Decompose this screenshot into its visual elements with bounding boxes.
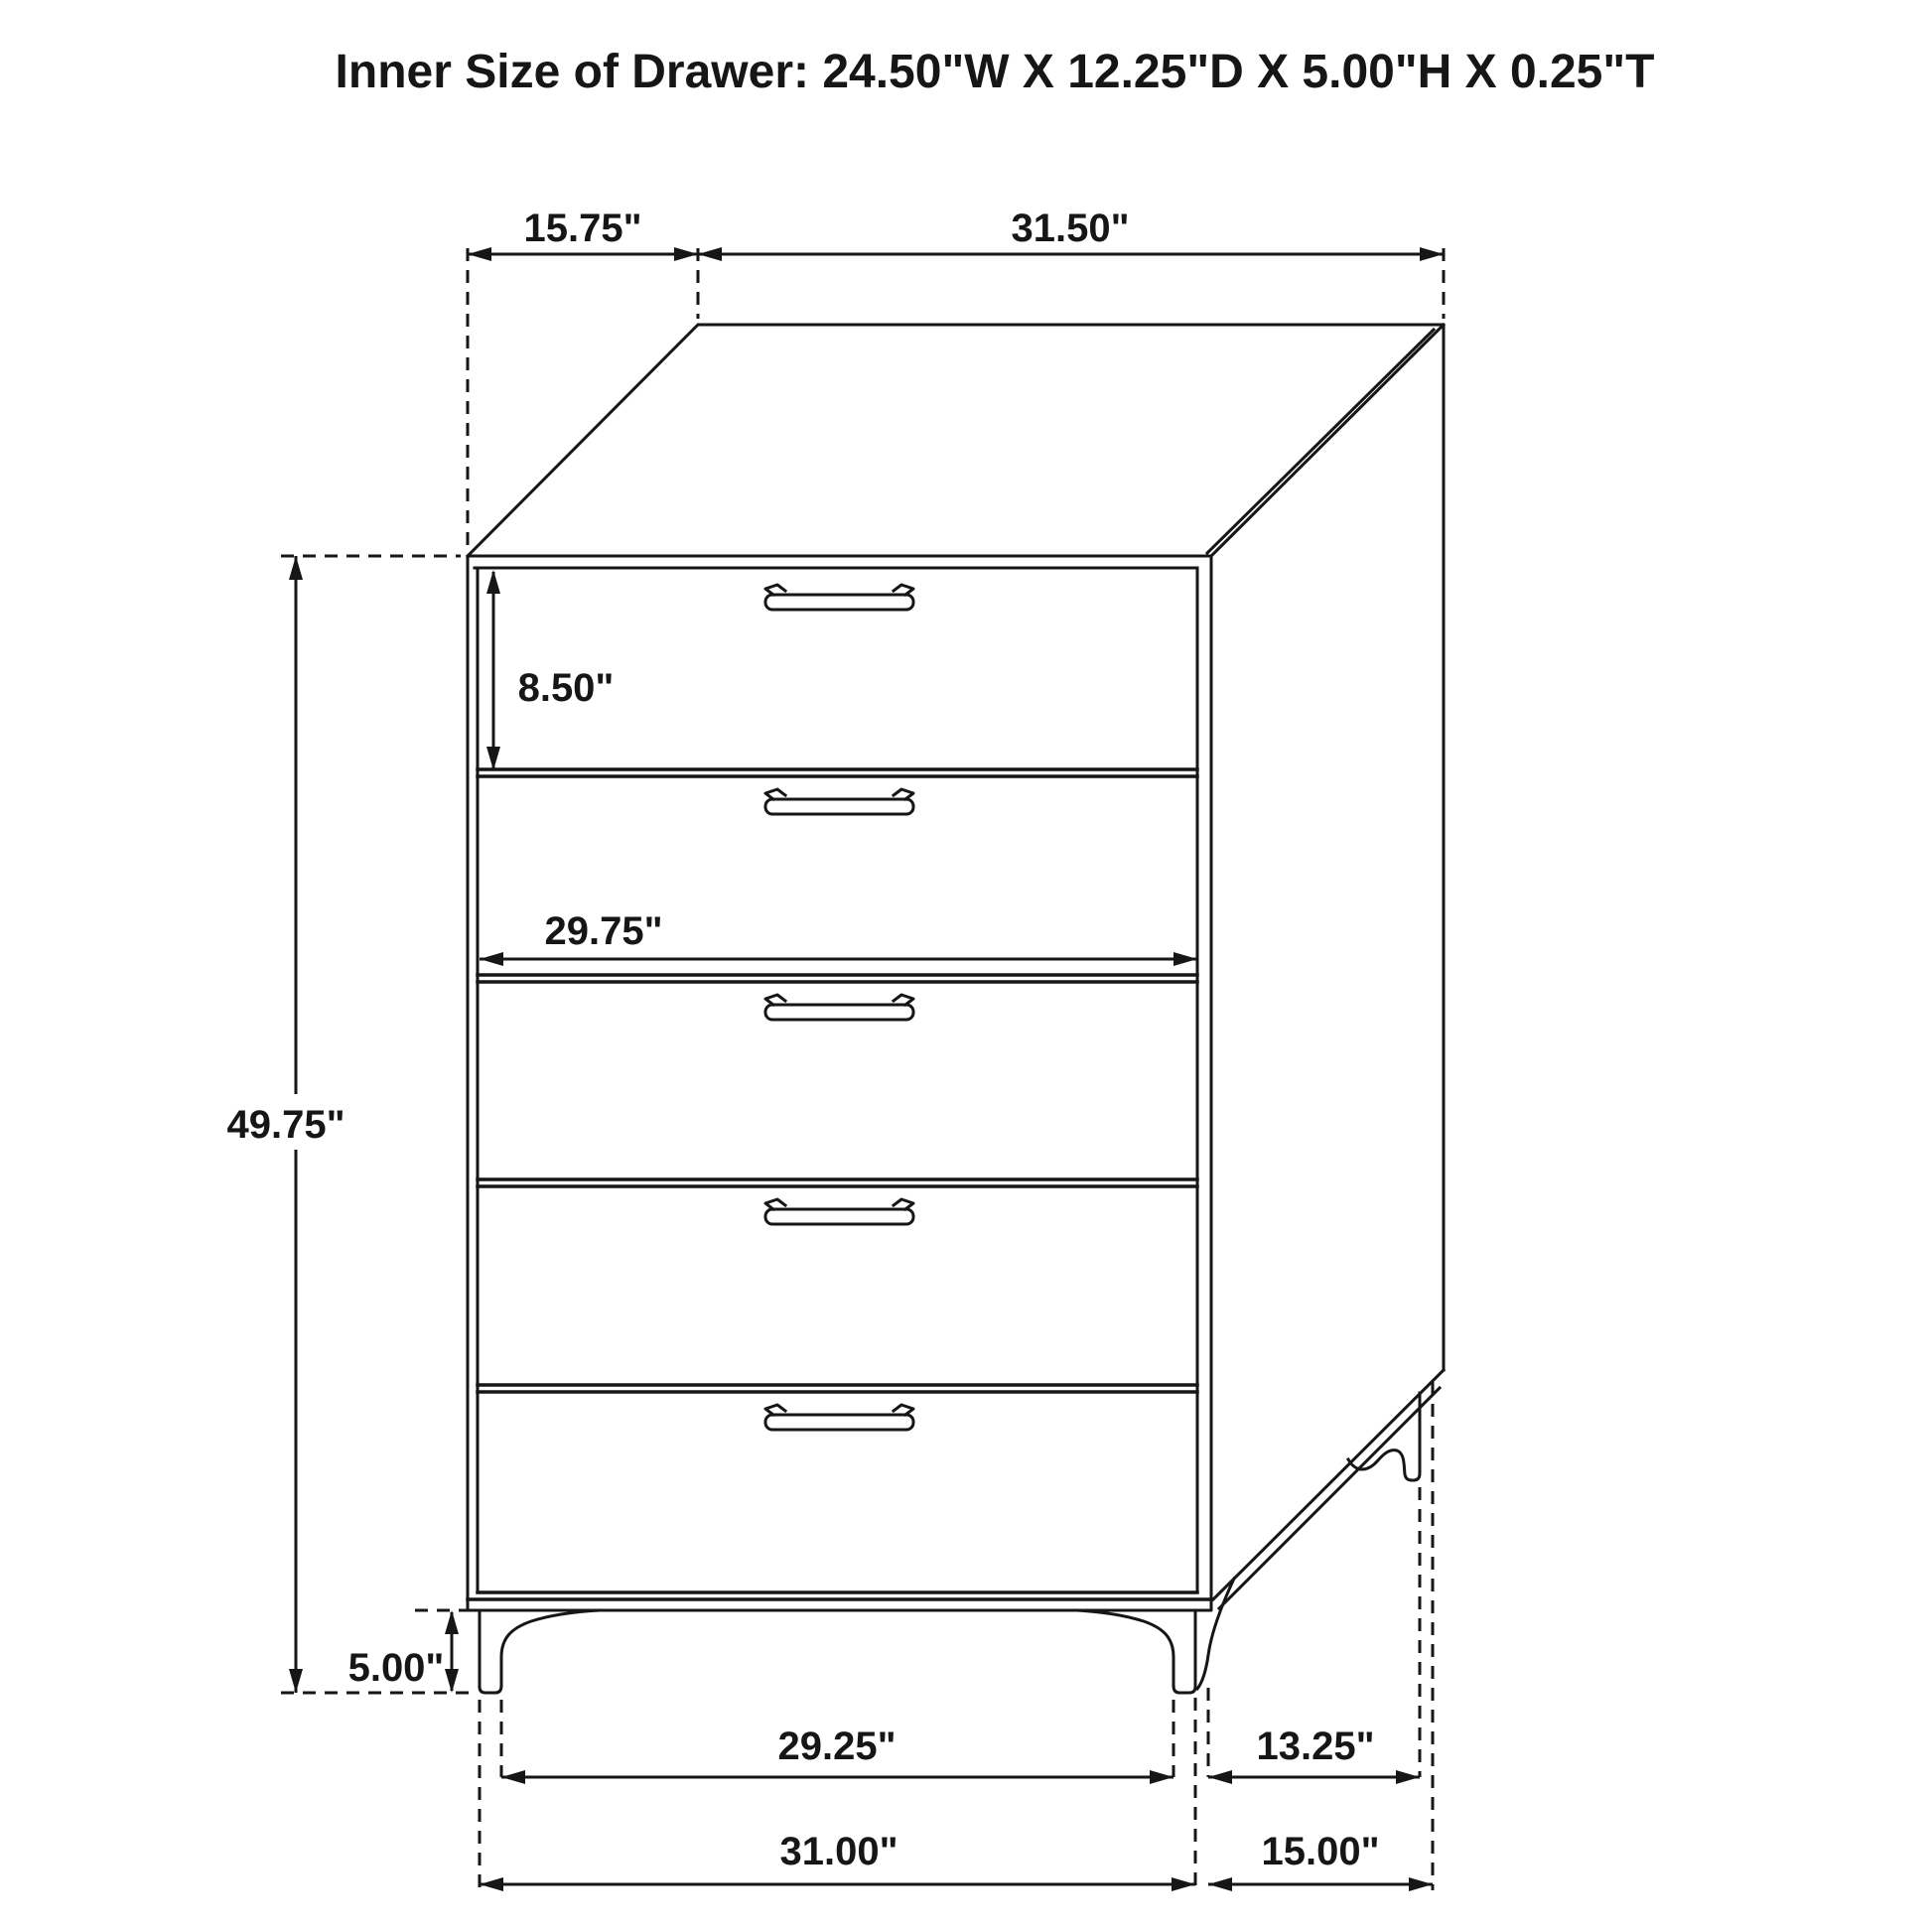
handle-bar	[765, 799, 913, 814]
top-right-edge-inner	[1207, 330, 1434, 553]
dim-front-leg-inner-span: 29.25"	[501, 1725, 1173, 1784]
drawer-5-handle	[765, 1405, 913, 1430]
side-bottom-outer	[1213, 1370, 1444, 1599]
cabinet-legs	[480, 1393, 1420, 1693]
drawer-handles	[765, 585, 913, 1430]
dim-leg-height-label: 5.00"	[348, 1646, 445, 1690]
cabinet-drawing	[468, 325, 1444, 1693]
drawer-1-handle	[765, 585, 913, 610]
arrow-left-icon	[468, 247, 491, 261]
side-bottom-inner	[1219, 1388, 1440, 1608]
handle-bar	[765, 1005, 913, 1020]
top-face-outline	[468, 325, 1444, 1370]
dim-drawer-front-width: 29.75"	[480, 909, 1197, 966]
arrow-left-icon	[1208, 1770, 1232, 1784]
diagram-page: 15.75" 31.50" 49.75"	[0, 0, 1932, 1932]
dim-leg-height: 5.00"	[348, 1610, 459, 1693]
cabinet-top-face	[468, 325, 1444, 1370]
dim-base-front-width: 31.00"	[480, 1830, 1195, 1891]
arrow-right-icon	[674, 247, 698, 261]
dim-base-side-depth-label: 15.00"	[1261, 1830, 1379, 1873]
dim-top-width-label: 31.50"	[1011, 207, 1129, 250]
arrow-right-icon	[1150, 1770, 1173, 1784]
handle-bar	[765, 595, 913, 610]
arrow-left-icon	[480, 952, 503, 966]
drawer-3-handle	[765, 995, 913, 1020]
arrow-up-icon	[289, 556, 303, 580]
dim-overall-height: 49.75"	[205, 556, 367, 1693]
arrow-left-icon	[501, 1770, 525, 1784]
arrow-right-icon	[1173, 952, 1197, 966]
arrow-left-icon	[698, 247, 722, 261]
arrow-down-icon	[486, 747, 500, 770]
front-face-outline	[468, 556, 1211, 1610]
dim-top-depth-label: 15.75"	[523, 207, 641, 250]
drawer-4-handle	[765, 1199, 913, 1224]
dim-top-depth: 15.75"	[468, 207, 698, 261]
dim-front-leg-inner-span-label: 29.25"	[777, 1725, 896, 1768]
arrow-up-icon	[486, 570, 500, 594]
cabinet-front-face	[468, 556, 1211, 1610]
handle-bar	[765, 1209, 913, 1224]
arrow-right-icon	[1409, 1877, 1433, 1891]
arrow-up-icon	[445, 1610, 459, 1634]
dim-side-leg-span: 13.25"	[1208, 1725, 1420, 1784]
page-title: Inner Size of Drawer: 24.50"W X 12.25"D …	[336, 46, 1655, 98]
dim-base-front-width-label: 31.00"	[779, 1830, 897, 1873]
dim-overall-height-label: 49.75"	[226, 1103, 345, 1147]
dim-base-side-depth: 15.00"	[1208, 1830, 1433, 1891]
handle-bar	[765, 1415, 913, 1430]
arrow-right-icon	[1420, 247, 1444, 261]
arrow-down-icon	[289, 1669, 303, 1693]
arrow-left-icon	[480, 1877, 503, 1891]
arrow-right-icon	[1396, 1770, 1420, 1784]
dimension-annotations: 15.75" 31.50" 49.75"	[205, 207, 1444, 1891]
front-right-leg	[1077, 1610, 1195, 1693]
top-right-edge-outer	[1211, 325, 1444, 556]
side-bottom-edge	[1197, 1370, 1444, 1689]
drawer-2-handle	[765, 789, 913, 814]
dim-drawer-front-width-label: 29.75"	[544, 909, 662, 953]
chest-dimension-diagram: 15.75" 31.50" 49.75"	[0, 0, 1932, 1932]
front-left-leg	[480, 1610, 600, 1693]
dim-first-drawer-height: 8.50"	[486, 570, 614, 770]
extension-lines	[281, 248, 1444, 1890]
arrow-left-icon	[1208, 1877, 1232, 1891]
drawer-separators	[478, 769, 1197, 1392]
dim-first-drawer-height-label: 8.50"	[518, 666, 615, 710]
dim-top-width: 31.50"	[698, 207, 1444, 261]
arrow-down-icon	[445, 1669, 459, 1693]
arrow-right-icon	[1172, 1877, 1195, 1891]
dim-side-leg-span-label: 13.25"	[1256, 1725, 1374, 1768]
